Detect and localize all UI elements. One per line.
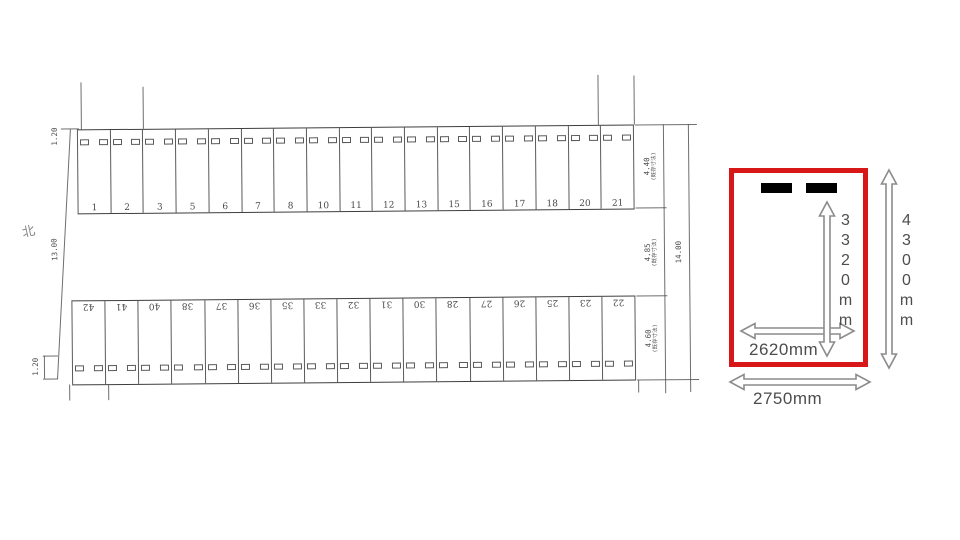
dim-bottom-row-depth: 4.60 (既存寸法) (643, 308, 660, 368)
wheel-stop (525, 361, 534, 367)
parking-stall: 11 (340, 128, 373, 211)
dim-bottom-setback: 1.20 (32, 355, 40, 379)
wheel-stop (108, 365, 117, 371)
parking-stall: 28 (437, 298, 471, 381)
parking-stall: 38 (172, 300, 206, 383)
wheel-stop (94, 365, 103, 371)
site-plan-drawing: 123567810111213151617182021 424140383736… (0, 0, 722, 540)
wheel-stop (145, 139, 154, 145)
wheel-stop (229, 138, 238, 144)
stall-number: 28 (437, 298, 469, 308)
extension-line (108, 385, 109, 400)
parking-stall: 22 (602, 297, 636, 380)
wheel-stop (141, 365, 150, 371)
parking-stall: 33 (304, 299, 338, 382)
extension-line (633, 76, 634, 125)
dim-value: 1.20 (51, 128, 59, 146)
wheel-stop (591, 361, 600, 367)
wheel-stop (440, 136, 449, 142)
wheel-stop (241, 364, 250, 370)
parking-stall: 27 (470, 298, 504, 381)
stall-number: 23 (569, 297, 601, 307)
parking-stall: 5 (176, 129, 209, 212)
wheel-stop (307, 363, 316, 369)
stall-number: 6 (209, 202, 241, 212)
dimension-line (688, 124, 691, 392)
wheel-stop (174, 364, 183, 370)
wheel-stop (589, 135, 598, 141)
stall-number: 10 (307, 201, 339, 211)
dim-value: 4.60 (645, 329, 653, 347)
parking-stall: 42 (71, 301, 106, 384)
parking-stall: 25 (536, 297, 570, 380)
dim-boundary-length: 13.00 (50, 229, 60, 269)
wheel-stop (605, 361, 614, 367)
wheel-stop (622, 135, 631, 141)
wheel-stop (80, 139, 89, 145)
dim-value: 14.00 (675, 241, 683, 264)
stall-number: 12 (373, 201, 405, 211)
wheel-stop (293, 363, 302, 369)
stall-number: 17 (504, 199, 536, 209)
stall-number: 35 (271, 299, 303, 309)
wheel-stop (505, 136, 514, 142)
wheel-stop (524, 135, 533, 141)
wheel-stop (538, 135, 547, 141)
wheel-stop (373, 363, 382, 369)
parking-stall: 30 (404, 298, 438, 381)
wheel-stop (211, 138, 220, 144)
parking-stall: 20 (568, 126, 601, 209)
parking-stall: 8 (274, 128, 307, 211)
parking-stall: 16 (470, 127, 503, 210)
wheel-stop (131, 139, 140, 145)
parking-row-bottom: 4241403837363533323130282726252322 (71, 296, 636, 386)
wheel-stop (624, 361, 633, 367)
parking-stall: 26 (503, 297, 537, 380)
parking-stall: 13 (405, 127, 438, 210)
parking-stall: 23 (569, 297, 603, 380)
label-outer-depth: 4300mm (898, 212, 914, 332)
extension-line (143, 87, 144, 129)
wheel-stop (75, 365, 84, 371)
tick (43, 379, 58, 380)
label-inner-depth: 3320mm (837, 212, 853, 332)
wheel-stop (393, 137, 402, 143)
stall-number: 2 (111, 203, 143, 213)
tick (636, 207, 667, 208)
wheel-stop (539, 361, 548, 367)
parking-stall: 3 (143, 130, 176, 213)
label-inner-width: 2620mm (749, 340, 818, 360)
parking-stall: 2 (111, 130, 144, 213)
stall-number: 40 (139, 301, 171, 311)
wheel-stop (491, 136, 500, 142)
stall-number: 3 (144, 203, 176, 213)
wheel-stop (340, 363, 349, 369)
stall-number: 13 (406, 200, 438, 210)
parking-stall: 41 (106, 301, 140, 384)
dim-value: 1.20 (32, 358, 40, 376)
wheel-stop (207, 364, 216, 370)
parking-stall: 18 (536, 126, 569, 209)
dim-note: (既存寸法) (652, 238, 658, 267)
parking-stall: 12 (372, 128, 405, 211)
stall-number: 11 (340, 201, 372, 211)
wheel-stop (571, 135, 580, 141)
wheel-stop (392, 363, 401, 369)
wheel-stop (197, 138, 206, 144)
wheel-stop (274, 364, 283, 370)
dim-value: 13.00 (50, 238, 59, 261)
stall-number: 33 (304, 299, 336, 309)
wheel-stop (113, 139, 122, 145)
stall-number: 7 (242, 202, 274, 212)
wheel-stop (406, 362, 415, 368)
wheel-stop (506, 362, 515, 368)
tick (44, 356, 45, 379)
wheel-stop (472, 136, 481, 142)
parking-stall: 36 (238, 300, 272, 383)
stall-number: 22 (602, 297, 634, 307)
stall-number: 27 (470, 298, 502, 308)
parking-stall: 10 (307, 128, 340, 211)
stall-number: 5 (177, 202, 209, 212)
wheel-stop (426, 136, 435, 142)
dimension-arrows (700, 150, 960, 420)
stall-number: 36 (238, 300, 270, 310)
wheel-stop (243, 138, 252, 144)
tick (636, 295, 667, 296)
stall-number: 26 (503, 297, 535, 307)
label-outer-width: 2750mm (753, 389, 822, 409)
arrow-outer-width (730, 375, 870, 390)
parking-stall: 35 (271, 299, 305, 382)
wheel-stop (439, 362, 448, 368)
parking-stall: 7 (241, 129, 274, 212)
wheel-stop (407, 136, 416, 142)
stall-number: 8 (275, 201, 307, 211)
dimension-line (663, 124, 666, 393)
arrow-outer-depth (882, 170, 897, 368)
stall-number: 37 (205, 300, 237, 310)
wheel-stop (572, 361, 581, 367)
wheel-stop (227, 364, 236, 370)
wheel-stop (425, 362, 434, 368)
parking-stall: 17 (503, 126, 536, 209)
wheel-stop (127, 365, 136, 371)
wheel-stop (360, 137, 369, 143)
extension-line (80, 82, 81, 129)
wheel-stop (603, 135, 612, 141)
dim-overall-depth: 14.00 (674, 232, 684, 272)
wheel-stop (458, 362, 467, 368)
parking-stall: 6 (209, 129, 242, 212)
extension-line (69, 384, 70, 400)
wheel-stop (164, 139, 173, 145)
dim-aisle-width: 4.85 (既存寸法) (643, 222, 660, 282)
stall-number: 18 (536, 199, 568, 209)
parking-row-top: 123567810111213151617182021 (77, 125, 635, 215)
dim-top-setback: 1.20 (51, 125, 59, 149)
parking-stall: 32 (337, 299, 371, 382)
wheel-stop (374, 137, 383, 143)
parking-stall: 40 (139, 301, 173, 384)
wheel-stop (328, 137, 337, 143)
wheel-stop (557, 135, 566, 141)
stall-number: 25 (536, 297, 568, 307)
wheel-stop (160, 365, 169, 371)
stall-number: 32 (337, 299, 369, 309)
north-mark: 北 (20, 220, 37, 241)
wheel-stop (295, 137, 304, 143)
wheel-stop (276, 138, 285, 144)
stall-number: 30 (404, 298, 436, 308)
stall-number: 20 (569, 199, 601, 209)
tick (43, 356, 58, 357)
wheel-stop (309, 137, 318, 143)
parking-stall: 37 (205, 300, 239, 383)
wheel-stop (262, 138, 271, 144)
wheel-stop (260, 364, 269, 370)
wheel-stop (472, 362, 481, 368)
stall-number: 16 (471, 200, 503, 210)
parking-stall: 15 (438, 127, 471, 210)
parking-stall: 21 (601, 126, 634, 209)
stall-number: 38 (172, 300, 204, 310)
dim-note: (既存寸法) (651, 152, 657, 181)
stall-number: 21 (602, 199, 634, 209)
wheel-stop (193, 364, 202, 370)
parking-stall: 31 (371, 299, 405, 382)
wheel-stop (342, 137, 351, 143)
parking-stall: 1 (77, 130, 111, 213)
stall-number: 1 (79, 203, 111, 213)
tick (61, 128, 79, 129)
stall-number: 41 (106, 301, 138, 311)
extension-line (597, 75, 598, 125)
wheel-stop (326, 363, 335, 369)
dim-value: 4.40 (643, 157, 651, 175)
stall-number: 15 (438, 200, 470, 210)
dim-note: (既存寸法) (653, 324, 659, 353)
wheel-stop (178, 138, 187, 144)
stall-number: 42 (72, 301, 104, 311)
screenshot-canvas: 123567810111213151617182021 424140383736… (0, 0, 960, 540)
wheel-stop (99, 139, 108, 145)
dim-top-row-depth: 4.40 (既存寸法) (642, 136, 659, 196)
extension-line (638, 379, 639, 392)
wheel-stop (558, 361, 567, 367)
wheel-stop (492, 362, 501, 368)
wheel-stop (359, 363, 368, 369)
wheel-stop (458, 136, 467, 142)
dim-value: 4.85 (644, 243, 652, 261)
stall-number: 31 (371, 299, 403, 309)
